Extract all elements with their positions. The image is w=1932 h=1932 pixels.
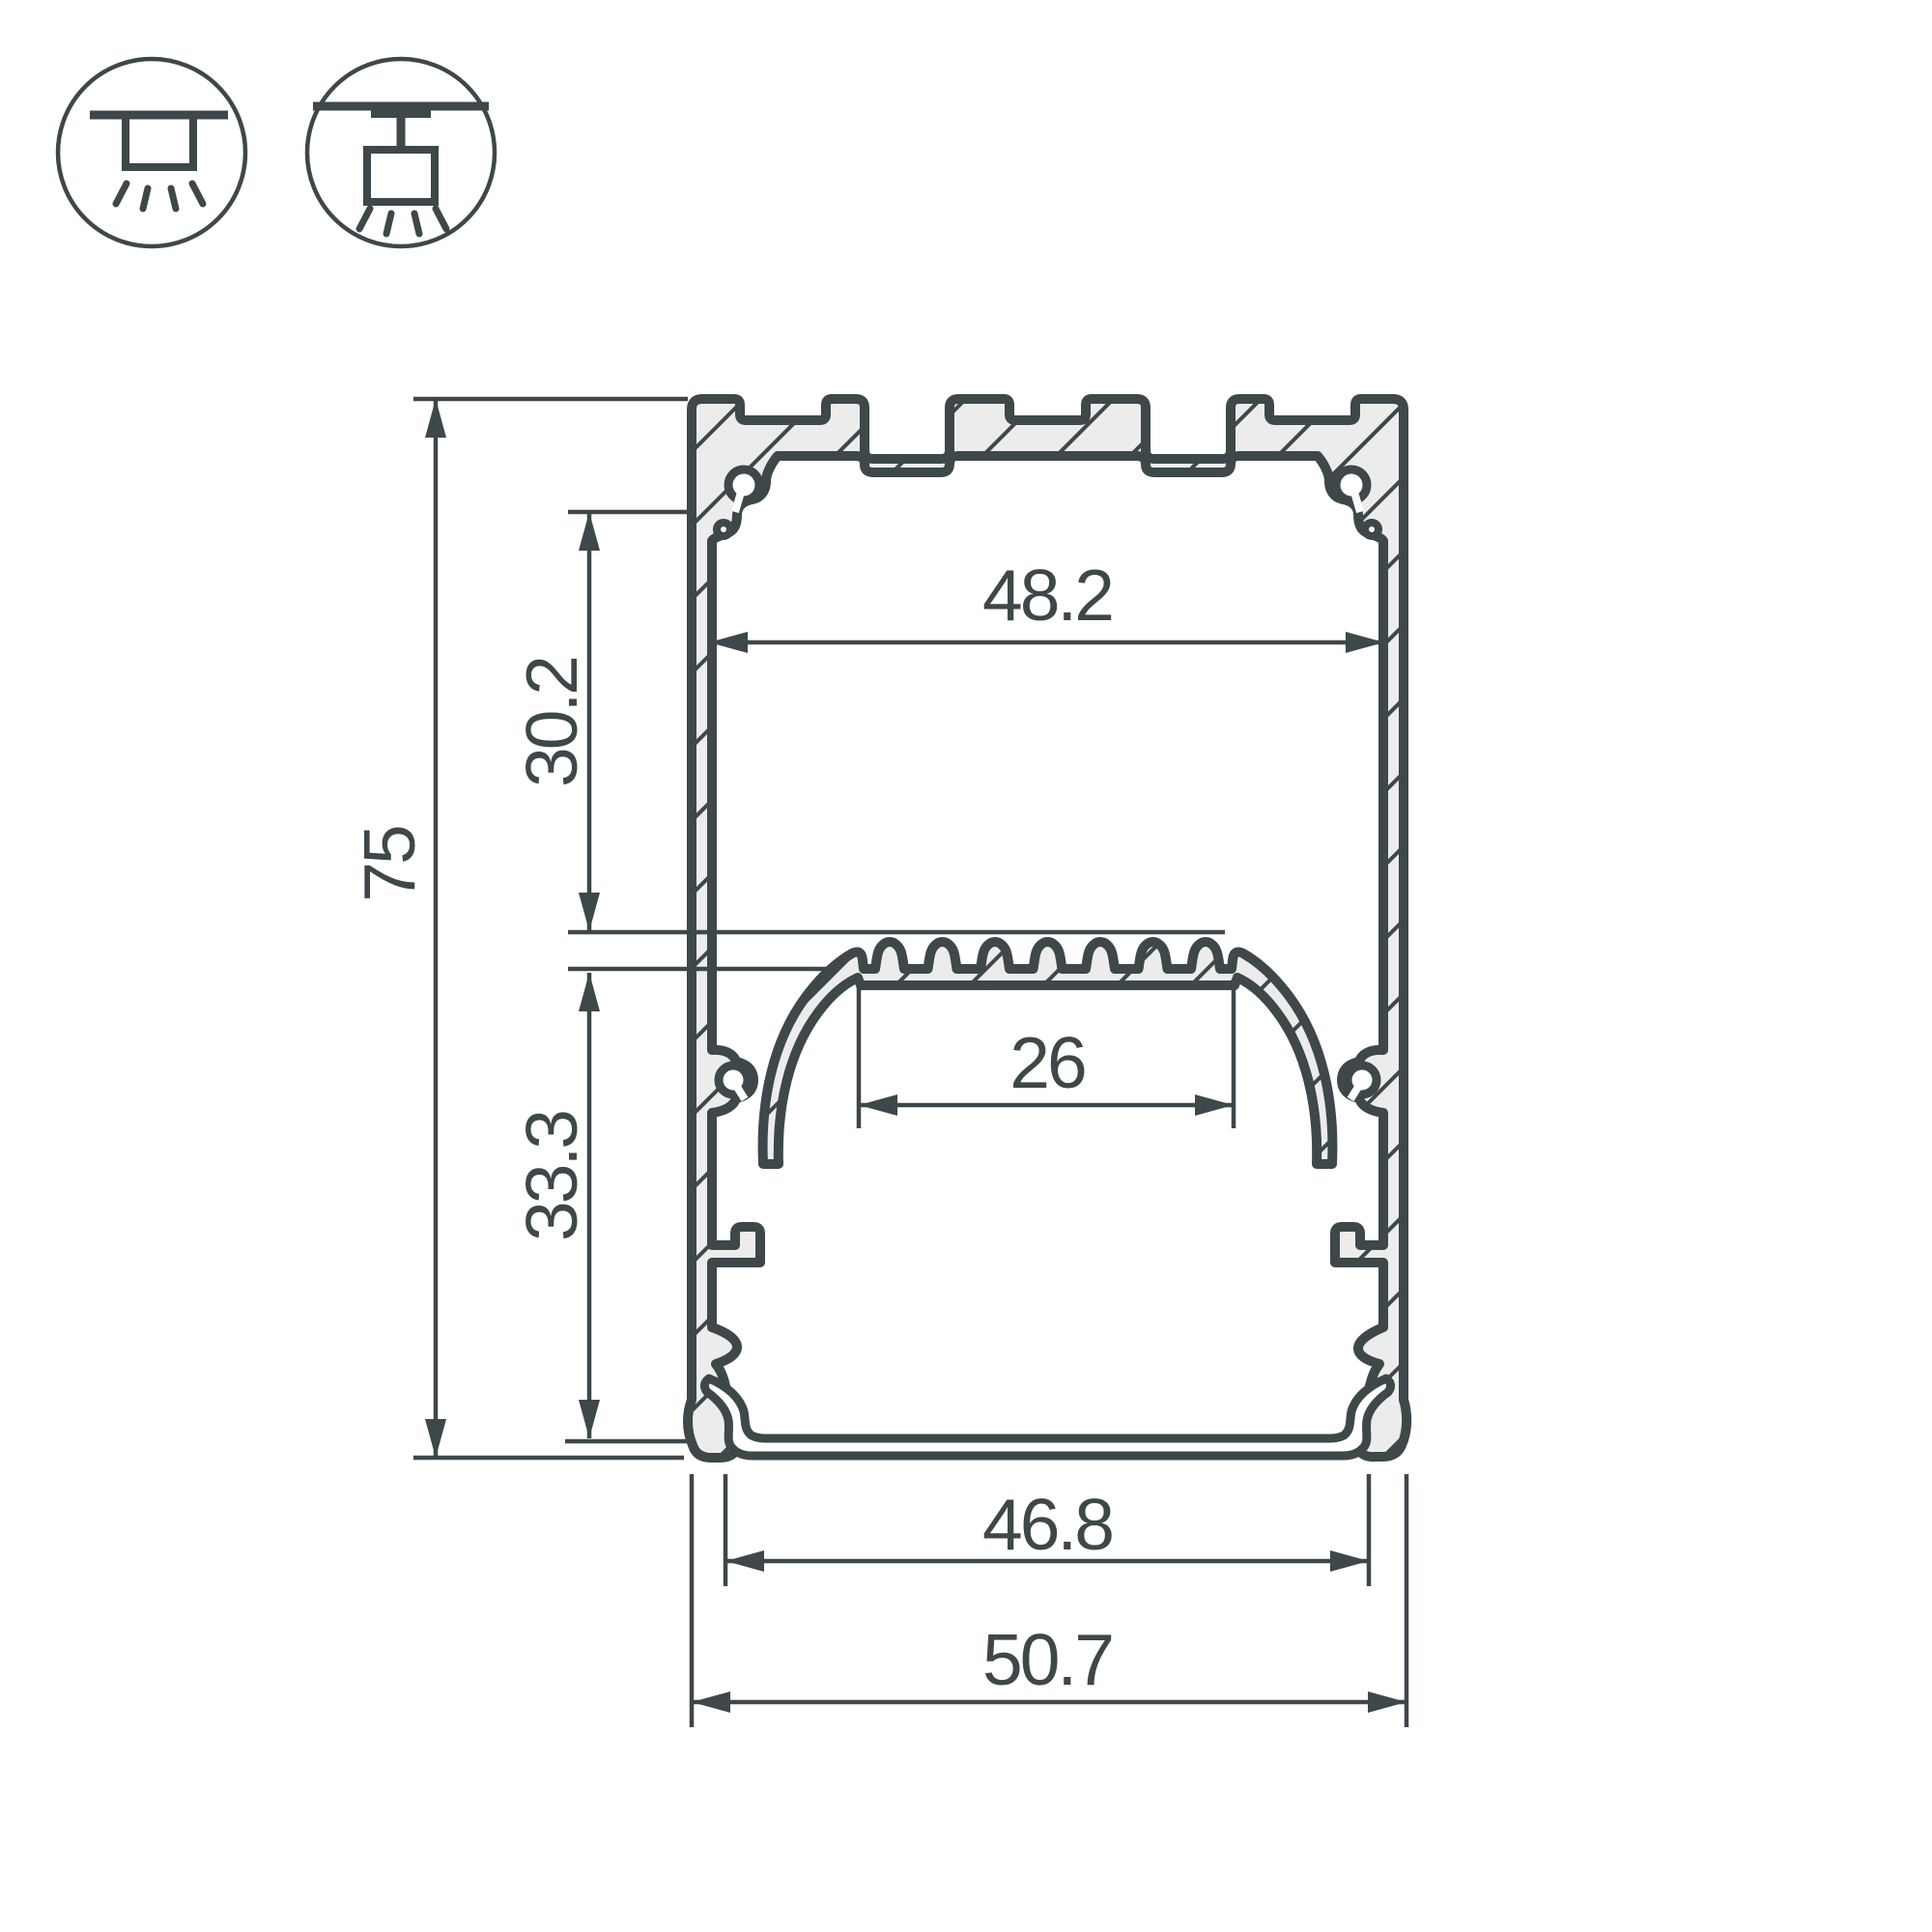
svg-text:75: 75 — [349, 827, 430, 902]
svg-text:30.2: 30.2 — [511, 658, 592, 787]
svg-text:26: 26 — [1009, 1022, 1085, 1103]
svg-text:46.8: 46.8 — [982, 1484, 1112, 1565]
svg-text:48.2: 48.2 — [982, 554, 1112, 636]
svg-text:33.3: 33.3 — [511, 1112, 592, 1241]
svg-text:50.7: 50.7 — [982, 1619, 1112, 1700]
